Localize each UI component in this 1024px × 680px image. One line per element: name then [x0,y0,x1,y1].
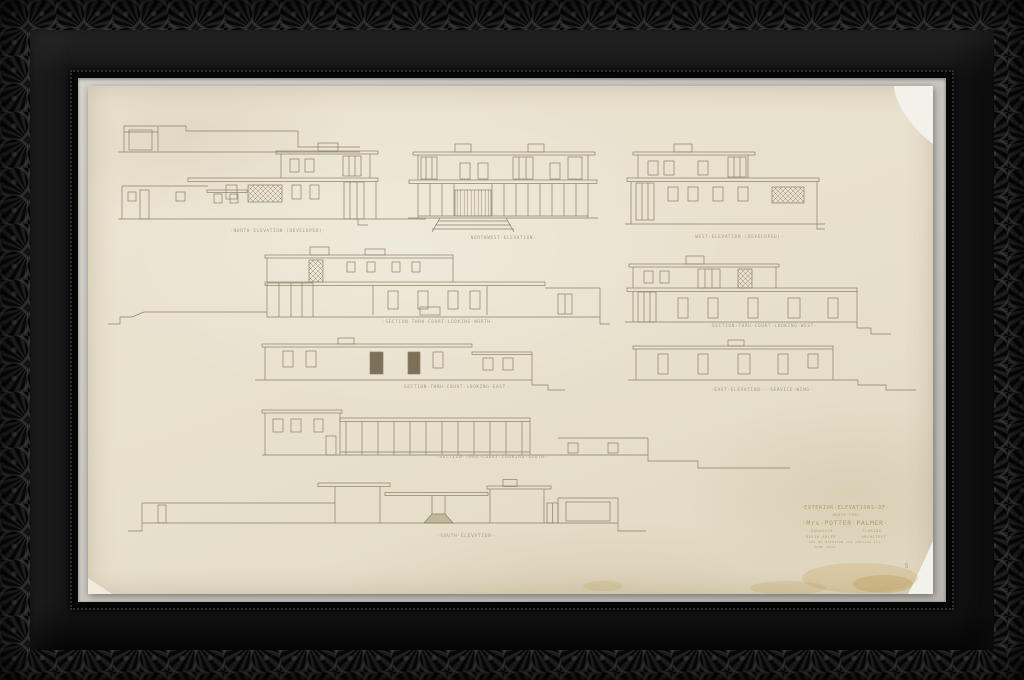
east-service-wing-label: ·EAST·ELEVATION···SERVICE·WING· [711,387,813,393]
section-north-label: ·SECTION·THRU·COURT·LOOKING·NORTH· [382,319,494,325]
sheet-number: 5 [905,563,909,570]
drawing-sheet: ·NORTH·ELEVATION·(DEVELOPED)· ·NORTHWEST… [88,86,933,594]
title-location-left: SARASOTA [811,529,833,533]
section-south-label: ·SECTION·THRU·COURT·LOOKING·SOUTH· [436,454,548,460]
section-east-label: ·SECTION·THRU·COURT·LOOKING·EAST· [401,384,509,390]
section-court-west-drawing [625,256,891,334]
north-elevation-label: ·NORTH·ELEVATION·(DEVELOPED)· [230,228,325,234]
title-architect-left: DAVID ADLER [806,535,836,539]
east-elevation-service-wing-drawing [628,340,916,390]
north-elevation-drawing [118,143,426,225]
title-line-2: ·HOUSE·FOR· [830,513,860,517]
title-location-right: FLORIDA [862,529,881,533]
west-elevation-label: ·WEST·ELEVATION·(DEVELOPED)· [692,234,784,240]
south-elevation-drawing [128,480,646,532]
section-west-label: ·SECTION·THRU·COURT·LOOKING·WEST· [709,323,817,329]
paper-damage [88,86,933,594]
section-court-east-drawing [255,338,565,390]
roof-detail-drawing [118,126,360,152]
title-block: ·EXTERIOR·ELEVATIONS·OF· ·HOUSE·FOR· ·Mr… [800,505,909,570]
section-court-north-drawing [108,247,610,324]
title-client-name: ·Mrs·POTTER·PALMER· [802,519,888,527]
northwest-elevation-drawing [408,144,598,232]
south-elevation-label: ·SOUTH·ELEVATION· [437,533,495,539]
west-elevation-drawing [625,144,825,229]
elevations-drawing: ·NORTH·ELEVATION·(DEVELOPED)· ·NORTHWEST… [88,86,933,594]
title-architect-right: ARCHITECT [862,535,887,539]
title-address: 664 NO MICHIGAN AVE CHICAGO ILL [809,540,881,544]
title-date: JUNE 1936 [814,545,836,549]
title-line-1: ·EXTERIOR·ELEVATIONS·OF· [800,505,889,511]
northwest-elevation-label: ·NORTHWEST·ELEVATION· [467,235,536,241]
